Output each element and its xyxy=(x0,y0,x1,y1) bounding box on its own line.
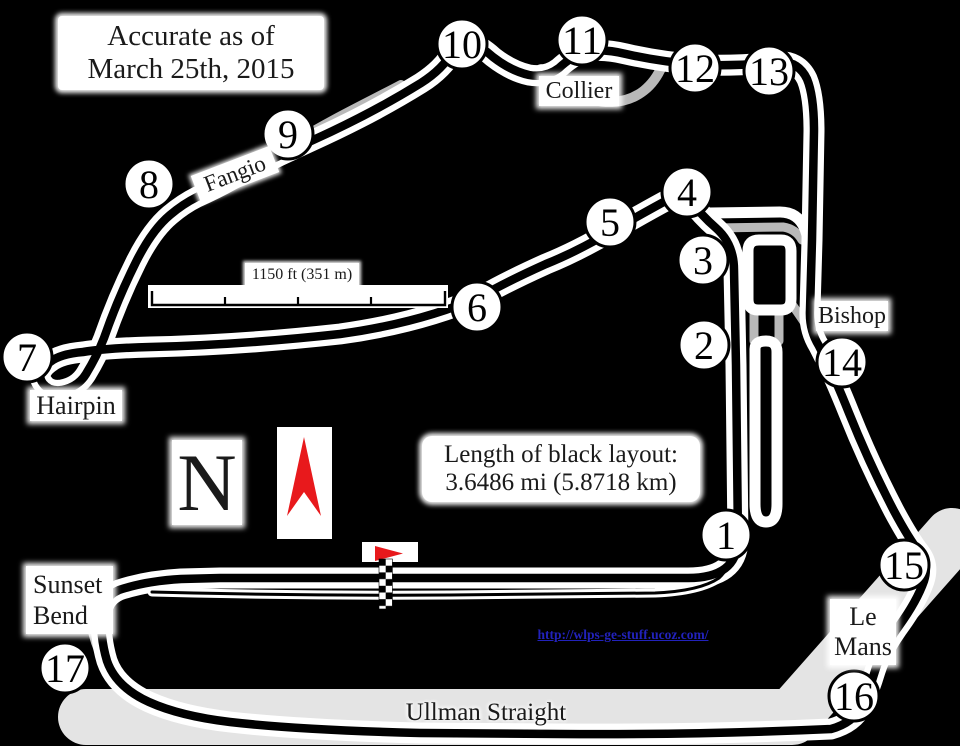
label-sunset-bend: Sunset Bend xyxy=(26,566,113,634)
alternate-roads-gray xyxy=(91,66,808,717)
runway-band xyxy=(86,536,952,717)
label-ullman-straight: Ullman Straight xyxy=(330,699,642,727)
north-letter: N xyxy=(172,440,242,525)
label-lemans-line1: Le xyxy=(830,602,896,632)
label-lemans-line2: Mans xyxy=(830,632,896,662)
length-note-line2: 3.6486 mi (5.8718 km) xyxy=(422,469,700,497)
svg-text:16: 16 xyxy=(834,674,874,719)
track-map-svg: 1234567891011121314151617 xyxy=(0,0,960,746)
corner-marker-6: 6 xyxy=(452,282,502,332)
svg-text:7: 7 xyxy=(17,335,37,380)
track-map: 1234567891011121314151617 Accurate as of… xyxy=(0,0,960,746)
accuracy-note-line1: Accurate as of xyxy=(58,20,324,53)
label-hairpin: Hairpin xyxy=(30,390,122,421)
corner-marker-15: 15 xyxy=(879,540,929,590)
corner-marker-10: 10 xyxy=(437,19,487,69)
corner-marker-12: 12 xyxy=(670,43,720,93)
length-note-line1: Length of black layout: xyxy=(422,441,700,469)
corner-marker-13: 13 xyxy=(744,46,794,96)
svg-text:1: 1 xyxy=(716,513,736,558)
corner-marker-11: 11 xyxy=(557,15,607,65)
label-le-mans: Le Mans xyxy=(830,599,896,665)
svg-text:8: 8 xyxy=(139,162,159,207)
corner-marker-7: 7 xyxy=(2,332,52,382)
svg-text:14: 14 xyxy=(822,340,862,385)
track-line xyxy=(40,41,926,734)
scale-bar-label: 1150 ft (351 m) xyxy=(245,263,359,287)
accuracy-note-line2: March 25th, 2015 xyxy=(58,53,324,86)
svg-text:4: 4 xyxy=(677,170,697,215)
svg-text:15: 15 xyxy=(884,543,924,588)
corner-marker-8: 8 xyxy=(124,159,174,209)
svg-text:6: 6 xyxy=(467,285,487,330)
main-circuit xyxy=(40,41,926,734)
label-sunset-line2: Bend xyxy=(33,600,113,631)
svg-text:10: 10 xyxy=(442,22,482,67)
svg-text:17: 17 xyxy=(45,646,85,691)
corner-marker-17: 17 xyxy=(40,643,90,693)
label-collier: Collier xyxy=(539,76,619,106)
corner-marker-14: 14 xyxy=(817,337,867,387)
svg-text:3: 3 xyxy=(693,238,713,283)
corner-marker-4: 4 xyxy=(662,167,712,217)
accuracy-note: Accurate as of March 25th, 2015 xyxy=(58,16,324,90)
length-note: Length of black layout: 3.6486 mi (5.871… xyxy=(422,436,700,502)
source-url-link[interactable]: http://wlps-ge-stuff.ucoz.com/ xyxy=(531,627,715,643)
corner-marker-16: 16 xyxy=(829,671,879,721)
corner-marker-2: 2 xyxy=(679,320,729,370)
corner-marker-3: 3 xyxy=(678,235,728,285)
north-arrow xyxy=(277,427,332,539)
svg-text:2: 2 xyxy=(694,323,714,368)
scale-bar xyxy=(148,285,448,308)
svg-text:9: 9 xyxy=(278,112,298,157)
label-bishop: Bishop xyxy=(816,301,888,331)
label-sunset-line1: Sunset xyxy=(33,569,113,600)
corner-marker-1: 1 xyxy=(701,510,751,560)
checkered-start-line xyxy=(379,559,392,609)
corner-marker-5: 5 xyxy=(585,197,635,247)
svg-text:13: 13 xyxy=(749,49,789,94)
svg-text:11: 11 xyxy=(562,18,602,63)
svg-text:5: 5 xyxy=(600,200,620,245)
svg-text:12: 12 xyxy=(675,46,715,91)
corner-markers: 1234567891011121314151617 xyxy=(2,15,929,721)
